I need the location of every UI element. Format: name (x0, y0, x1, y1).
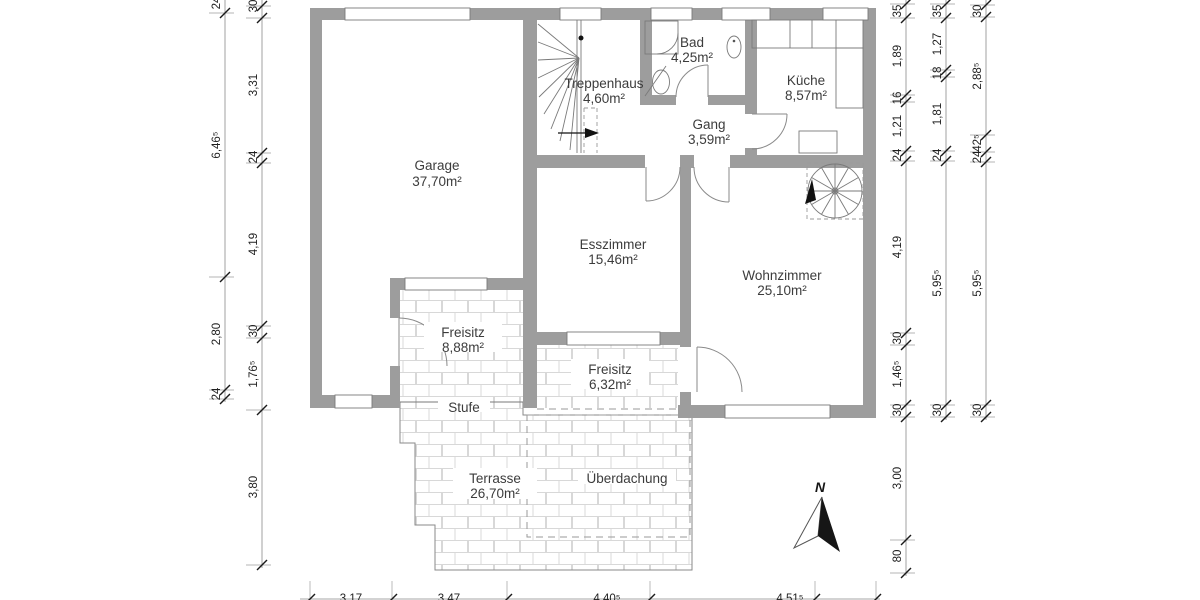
room-area-bad: 4,25m² (671, 50, 714, 65)
room-area-esszimmer: 15,46m² (588, 252, 638, 267)
wohnzimmer-door (694, 167, 729, 202)
garage-door-opening (345, 8, 470, 20)
stair-walkline-start (579, 36, 584, 41)
kueche-window-left (722, 8, 770, 20)
esszimmer-door (646, 167, 680, 201)
room-area-freisitz-888: 8,88m² (442, 340, 485, 355)
dim-label: 42⁵ (972, 134, 984, 152)
dim-label: 1,89 (892, 45, 904, 67)
room-area-terrasse: 26,70m² (470, 486, 520, 501)
dim-label: 2,88⁵ (972, 62, 984, 89)
dim-label: 16 (892, 92, 904, 105)
room-label-terrasse: Terrasse (469, 471, 521, 486)
freisitz-window (405, 278, 487, 290)
dim-label: 3,31 (248, 74, 260, 96)
dim-label: 35 (892, 5, 904, 18)
kueche-door (752, 114, 787, 149)
room-label-freisitz-632: Freisitz (588, 362, 632, 377)
room-label-esszimmer: Esszimmer (580, 237, 647, 252)
dim-label: 80 (892, 550, 904, 563)
dim-label: 1,46⁵ (892, 360, 904, 387)
dim-label: 35 (932, 5, 944, 18)
room-area-wohnzimmer: 25,10m² (757, 283, 807, 298)
dim-label: 24 (932, 148, 944, 161)
washbasin-icon (727, 36, 741, 58)
dim-label: 30 (972, 5, 984, 18)
garage-side-window (335, 395, 372, 408)
dim-label: 30 (248, 0, 260, 12)
dim-label: 24 (211, 0, 223, 9)
dim-label: 5,95⁵ (972, 269, 984, 296)
label-ueberdachung: Überdachung (586, 471, 667, 486)
dim-label: 3,47 (438, 593, 460, 600)
room-label-wohnzimmer: Wohnzimmer (742, 268, 822, 283)
dim-label: 3,80 (248, 476, 260, 498)
bad-door (676, 65, 708, 97)
terrasse-paving (400, 402, 692, 570)
dim-label: 4,40⁵ (593, 593, 620, 600)
north-arrow: N (794, 479, 840, 552)
room-area-kueche: 8,57m² (785, 88, 828, 103)
freisitz-632-door (697, 347, 742, 392)
treppenhaus-window (560, 8, 601, 20)
dim-label: 6,46⁵ (211, 131, 223, 158)
spiral-staircase (805, 163, 863, 219)
dim-label: 3,00 (892, 467, 904, 489)
esszimmer-window (567, 332, 660, 345)
room-area-treppenhaus: 4,60m² (583, 91, 626, 106)
dim-label: 30 (972, 404, 984, 417)
room-label-treppenhaus: Treppenhaus (564, 76, 643, 91)
dim-label: 24 (248, 150, 260, 163)
room-label-freisitz-888: Freisitz (441, 325, 485, 340)
dim-label: 24 (211, 387, 223, 400)
room-label-gang: Gang (692, 117, 725, 132)
dim-label: 30 (892, 404, 904, 417)
bad-window (651, 8, 692, 20)
room-area-freisitz-632: 6,32m² (589, 377, 632, 392)
north-label: N (815, 479, 826, 495)
dim-label: 30 (932, 404, 944, 417)
dim-label: 4,51⁵ (776, 593, 803, 600)
dim-label: 3,17 (340, 593, 362, 600)
room-label-garage: Garage (414, 158, 459, 173)
dim-label: 2,80 (211, 323, 223, 345)
room-area-garage: 37,70m² (412, 174, 462, 189)
dim-label: 30 (892, 332, 904, 345)
label-stufe: Stufe (448, 400, 480, 415)
dim-label: 1,21 (892, 115, 904, 137)
dim-label: 24 (892, 148, 904, 161)
dim-label: 18 (932, 67, 944, 80)
dim-label: 1,76⁵ (248, 360, 260, 387)
room-label-bad: Bad (680, 35, 704, 50)
dim-label: 1,81 (932, 103, 944, 125)
wohnzimmer-terrace-door (725, 405, 830, 418)
floor-plan: Garage 37,70m² Treppenhaus 4,60m² Bad 4,… (0, 0, 1200, 600)
dim-label: 4,19 (248, 233, 260, 255)
dim-label: 24 (972, 150, 984, 163)
dim-label: 1,27 (932, 33, 944, 55)
room-label-kueche: Küche (787, 73, 825, 88)
dim-label: 4,19 (892, 236, 904, 258)
dim-label: 30 (248, 325, 260, 338)
dim-label: 5,95⁵ (932, 269, 944, 296)
room-area-gang: 3,59m² (688, 132, 731, 147)
kueche-window-right (823, 8, 868, 20)
